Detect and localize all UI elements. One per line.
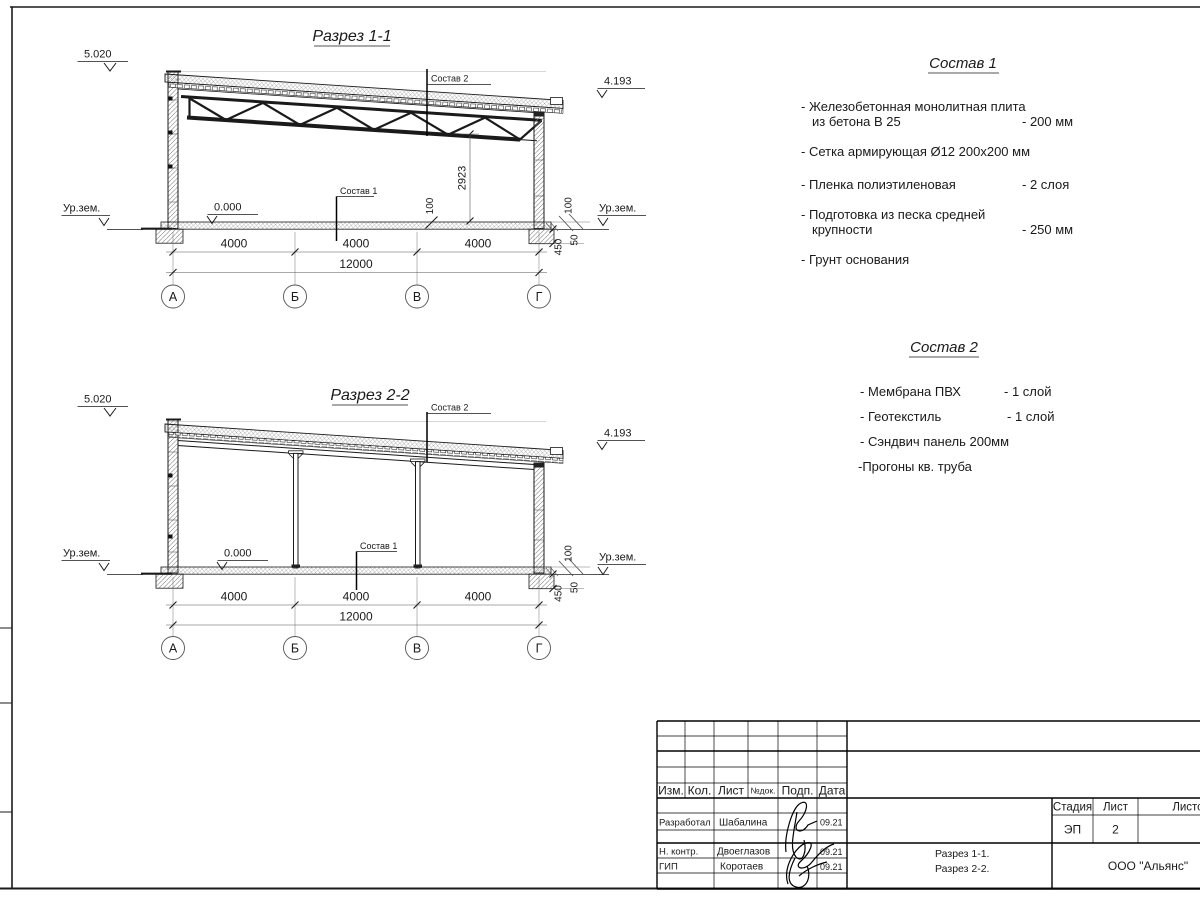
signature-squiggle	[786, 802, 834, 887]
tb-name: Коротаев	[720, 862, 763, 873]
tb-role: Н. контр.	[659, 847, 698, 858]
tb-date: 09.21	[820, 818, 843, 828]
tb-date: 09.21	[820, 847, 843, 857]
svg-text:4000: 4000	[465, 237, 492, 251]
dim-2923: 2923	[457, 131, 480, 225]
svg-text:Г: Г	[536, 642, 543, 656]
svg-text:4000: 4000	[221, 237, 248, 251]
tb-listov-header: Листов	[1172, 802, 1200, 814]
list-item: - Подготовка из песка средней	[801, 207, 985, 222]
section-2-drawing: Разрез 2-2 5.020	[62, 387, 647, 660]
svg-text:450: 450	[554, 585, 565, 602]
tb-header-podp: Подп.	[782, 784, 814, 798]
list-item-value: - 250 мм	[1022, 222, 1073, 237]
tb-role: Разработал	[659, 818, 711, 829]
svg-text:2923: 2923	[457, 166, 469, 190]
svg-text:4000: 4000	[465, 590, 492, 604]
svg-text:50: 50	[570, 582, 581, 594]
svg-text:4.193: 4.193	[604, 76, 632, 88]
list-item-value: - 2 слоя	[1022, 177, 1069, 192]
gutter-box-s1	[551, 98, 563, 105]
svg-text:12000: 12000	[339, 257, 373, 271]
tb-header-doc: №док.	[751, 786, 776, 796]
svg-text:4000: 4000	[343, 590, 370, 604]
svg-text:Состав 2: Состав 2	[431, 403, 468, 413]
list-item: - Мембрана ПВХ	[860, 384, 961, 399]
section-1-drawing: Разрез 1-1 5.020	[62, 28, 647, 308]
svg-text:0.000: 0.000	[214, 202, 242, 214]
sheet-frame	[0, 7, 1200, 889]
list-item-value: - 1 слой	[1004, 384, 1052, 399]
tb-role: ГИП	[659, 862, 678, 873]
svg-text:Состав 2: Состав 2	[431, 74, 468, 84]
tb-header-kol: Кол.	[688, 784, 712, 798]
svg-text:4.193: 4.193	[604, 428, 632, 440]
title-block: Изм. Кол. Лист №док. Подп. Дата Разработ…	[657, 721, 1200, 889]
tb-stage-header: Стадия	[1053, 802, 1092, 814]
elevation-value: 5.020	[84, 49, 112, 61]
list-item: - Пленка полиэтиленовая	[801, 177, 956, 192]
svg-text:Ур.зем.: Ур.зем.	[599, 203, 636, 215]
elevation-mark-4193-s1: 4.193	[597, 76, 645, 98]
tb-list-header: Лист	[1103, 802, 1129, 814]
sostav2-list: Состав 2 - Мембрана ПВХ - 1 слой - Геоте…	[858, 339, 1055, 474]
sostav2-title: Состав 2	[910, 339, 978, 356]
tb-name: Шабалина	[719, 817, 768, 829]
tb-header-izm: Изм.	[658, 784, 684, 798]
svg-text:Б: Б	[291, 290, 299, 304]
section2-title: Разрез 2-2	[330, 387, 409, 404]
elevation-mark-4193-s2: 4.193	[597, 428, 645, 450]
list-item-value: - 200 мм	[1022, 114, 1073, 129]
elevation-mark-5020-s1: 5.020	[78, 49, 129, 72]
list-item: из бетона В 25	[812, 114, 901, 129]
axis-bubbles-s2: А Б В Г	[162, 637, 551, 660]
roof-slab-s2	[165, 424, 563, 470]
svg-text:4000: 4000	[221, 590, 248, 604]
list-item: -Прогоны кв. труба	[858, 459, 973, 474]
left-column-s1	[166, 72, 181, 229]
svg-text:12000: 12000	[339, 610, 373, 624]
drawing-canvas: Разрез 1-1 5.020	[0, 0, 1200, 900]
svg-text:100: 100	[564, 197, 575, 214]
svg-text:Г: Г	[536, 290, 543, 304]
level-zero-s1: 0.000	[207, 202, 258, 224]
section1-title: Разрез 1-1	[312, 28, 391, 45]
tb-sheet-number: 2	[1112, 823, 1119, 837]
svg-text:4000: 4000	[343, 237, 370, 251]
list-item-value: - 1 слой	[1007, 409, 1055, 424]
list-item: - Железобетонная монолитная плита	[801, 99, 1026, 114]
tb-doc-title-1: Разрез 1-1.	[935, 848, 989, 860]
svg-text:Ур.зем.: Ур.зем.	[599, 552, 636, 564]
tb-name: Двоеглазов	[717, 847, 770, 858]
tb-doc-title-2: Разрез 2-2.	[935, 863, 989, 875]
list-item: - Грунт основания	[801, 252, 909, 267]
leader-sostav1-s1: Состав 1	[337, 186, 378, 241]
elevation-mark-5020-s2: 5.020	[78, 394, 129, 417]
svg-text:Б: Б	[291, 642, 299, 656]
tb-company: ООО "Альянс"	[1108, 859, 1188, 873]
list-item: - Сетка армирующая Ø12 200х200 мм	[801, 144, 1030, 159]
axis-bubbles-s1: А Б В Г	[162, 285, 551, 308]
svg-text:А: А	[169, 290, 178, 304]
list-item: - Геотекстиль	[860, 409, 941, 424]
svg-text:Состав 1: Состав 1	[340, 186, 377, 196]
interior-column-v-s2	[411, 459, 426, 568]
svg-text:100: 100	[425, 197, 436, 214]
tb-header-list: Лист	[718, 784, 745, 798]
svg-text:В: В	[413, 290, 421, 304]
svg-text:Состав 1: Состав 1	[360, 541, 397, 551]
sostav1-list: Состав 1 - Железобетонная монолитная пли…	[801, 55, 1073, 267]
svg-text:Ур.зем.: Ур.зем.	[63, 548, 100, 560]
list-item: крупности	[812, 222, 872, 237]
svg-text:100: 100	[564, 545, 575, 562]
ground-level-left-s1: Ур.зем.	[62, 203, 111, 226]
right-column-s1	[534, 112, 544, 229]
ground-level-left-s2: Ур.зем.	[62, 548, 111, 571]
svg-text:450: 450	[554, 238, 565, 255]
gutter-box-s2	[551, 448, 563, 455]
right-column-s2	[534, 463, 544, 573]
svg-text:0.000: 0.000	[224, 548, 252, 560]
tb-stage-value: ЭП	[1064, 823, 1081, 837]
svg-text:5.020: 5.020	[84, 394, 112, 406]
sostav1-title: Состав 1	[929, 55, 997, 72]
ground-level-right-s2: Ур.зем.	[598, 552, 647, 575]
svg-text:А: А	[169, 642, 178, 656]
list-item: - Сэндвич панель 200мм	[860, 434, 1009, 449]
svg-text:В: В	[413, 642, 421, 656]
svg-text:Ур.зем.: Ур.зем.	[63, 203, 100, 215]
level-zero-s2: 0.000	[217, 548, 268, 570]
leader-sostav1-s2: Состав 1	[357, 541, 398, 590]
ground-level-right-s1: Ур.зем.	[598, 203, 647, 226]
interior-column-b-s2	[289, 451, 304, 568]
dim-chain-s1: 4000 4000 4000 12000	[166, 232, 547, 285]
svg-text:50: 50	[570, 234, 581, 246]
tb-header-data: Дата	[819, 784, 846, 798]
